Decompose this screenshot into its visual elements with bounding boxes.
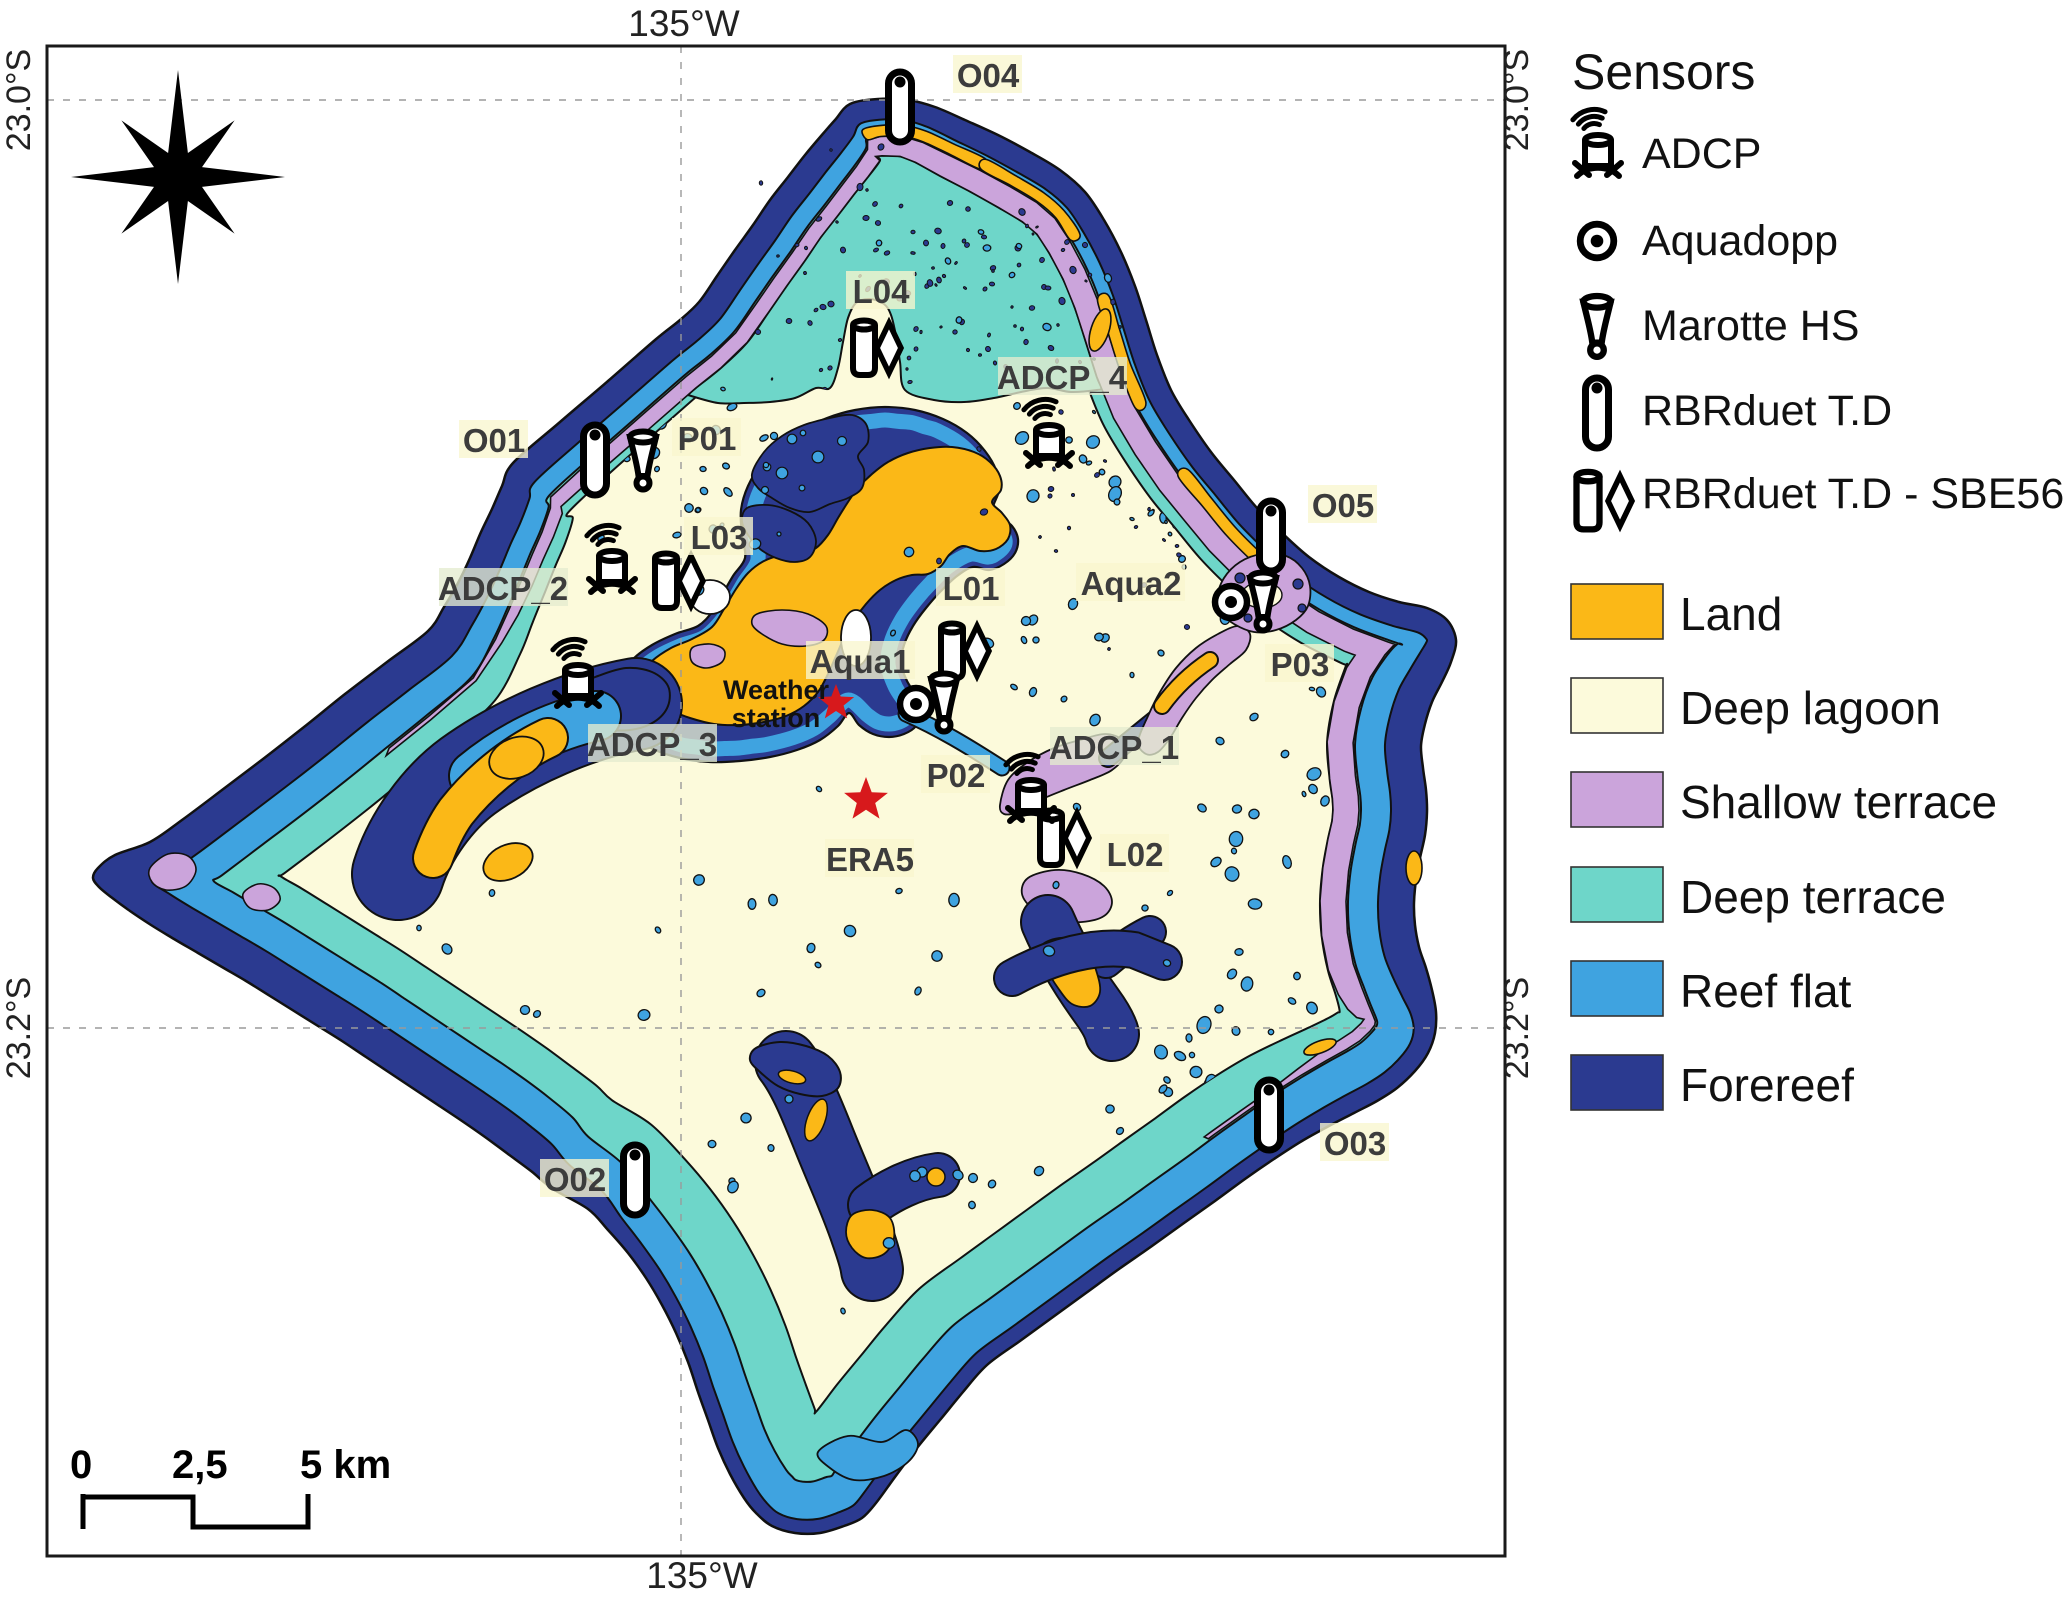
svg-text:RBRduet T.D: RBRduet T.D: [1642, 387, 1892, 435]
svg-text:23.0°S: 23.0°S: [0, 49, 38, 151]
svg-text:P02: P02: [927, 757, 986, 794]
svg-text:O01: O01: [463, 422, 525, 459]
svg-text:Aquadopp: Aquadopp: [1642, 217, 1838, 265]
svg-text:O05: O05: [1312, 487, 1374, 524]
svg-text:Sensors: Sensors: [1572, 44, 1755, 100]
svg-text:station: station: [732, 703, 821, 733]
svg-text:Reef flat: Reef flat: [1680, 965, 1852, 1017]
svg-text:ERA5: ERA5: [826, 841, 914, 878]
svg-text:Land: Land: [1680, 588, 1782, 640]
svg-text:P01: P01: [678, 420, 737, 457]
svg-text:23.2°S: 23.2°S: [0, 977, 38, 1079]
svg-text:L03: L03: [691, 519, 748, 556]
svg-text:L04: L04: [853, 273, 911, 310]
svg-text:ADCP: ADCP: [1642, 130, 1761, 178]
svg-text:ADCP_1: ADCP_1: [1049, 729, 1179, 766]
svg-text:Aqua2: Aqua2: [1081, 565, 1182, 602]
svg-text:135°W: 135°W: [646, 1555, 758, 1596]
svg-text:Weather: Weather: [723, 675, 830, 705]
svg-text:O02: O02: [544, 1161, 606, 1198]
svg-text:Marotte HS: Marotte HS: [1642, 302, 1859, 350]
svg-text:0: 0: [70, 1443, 92, 1487]
svg-text:RBRduet T.D - SBE56: RBRduet T.D - SBE56: [1642, 470, 2064, 518]
svg-text:O03: O03: [1324, 1125, 1386, 1162]
svg-text:2,5: 2,5: [172, 1443, 228, 1487]
svg-text:23.0°S: 23.0°S: [1498, 49, 1536, 151]
svg-text:135°W: 135°W: [628, 3, 740, 44]
svg-text:Deep lagoon: Deep lagoon: [1680, 682, 1941, 734]
svg-text:5 km: 5 km: [300, 1443, 391, 1487]
svg-text:L01: L01: [943, 570, 1000, 607]
svg-text:Forereef: Forereef: [1680, 1059, 1854, 1111]
svg-text:23.2°S: 23.2°S: [1498, 977, 1536, 1079]
svg-text:Shallow terrace: Shallow terrace: [1680, 776, 1997, 828]
svg-text:Deep terrace: Deep terrace: [1680, 871, 1946, 923]
svg-text:O04: O04: [957, 57, 1020, 94]
svg-text:P03: P03: [1271, 646, 1330, 683]
svg-text:ADCP_4: ADCP_4: [997, 359, 1128, 396]
svg-text:ADCP_2: ADCP_2: [438, 570, 568, 607]
svg-text:ADCP_3: ADCP_3: [587, 726, 717, 763]
svg-text:L02: L02: [1107, 836, 1164, 873]
